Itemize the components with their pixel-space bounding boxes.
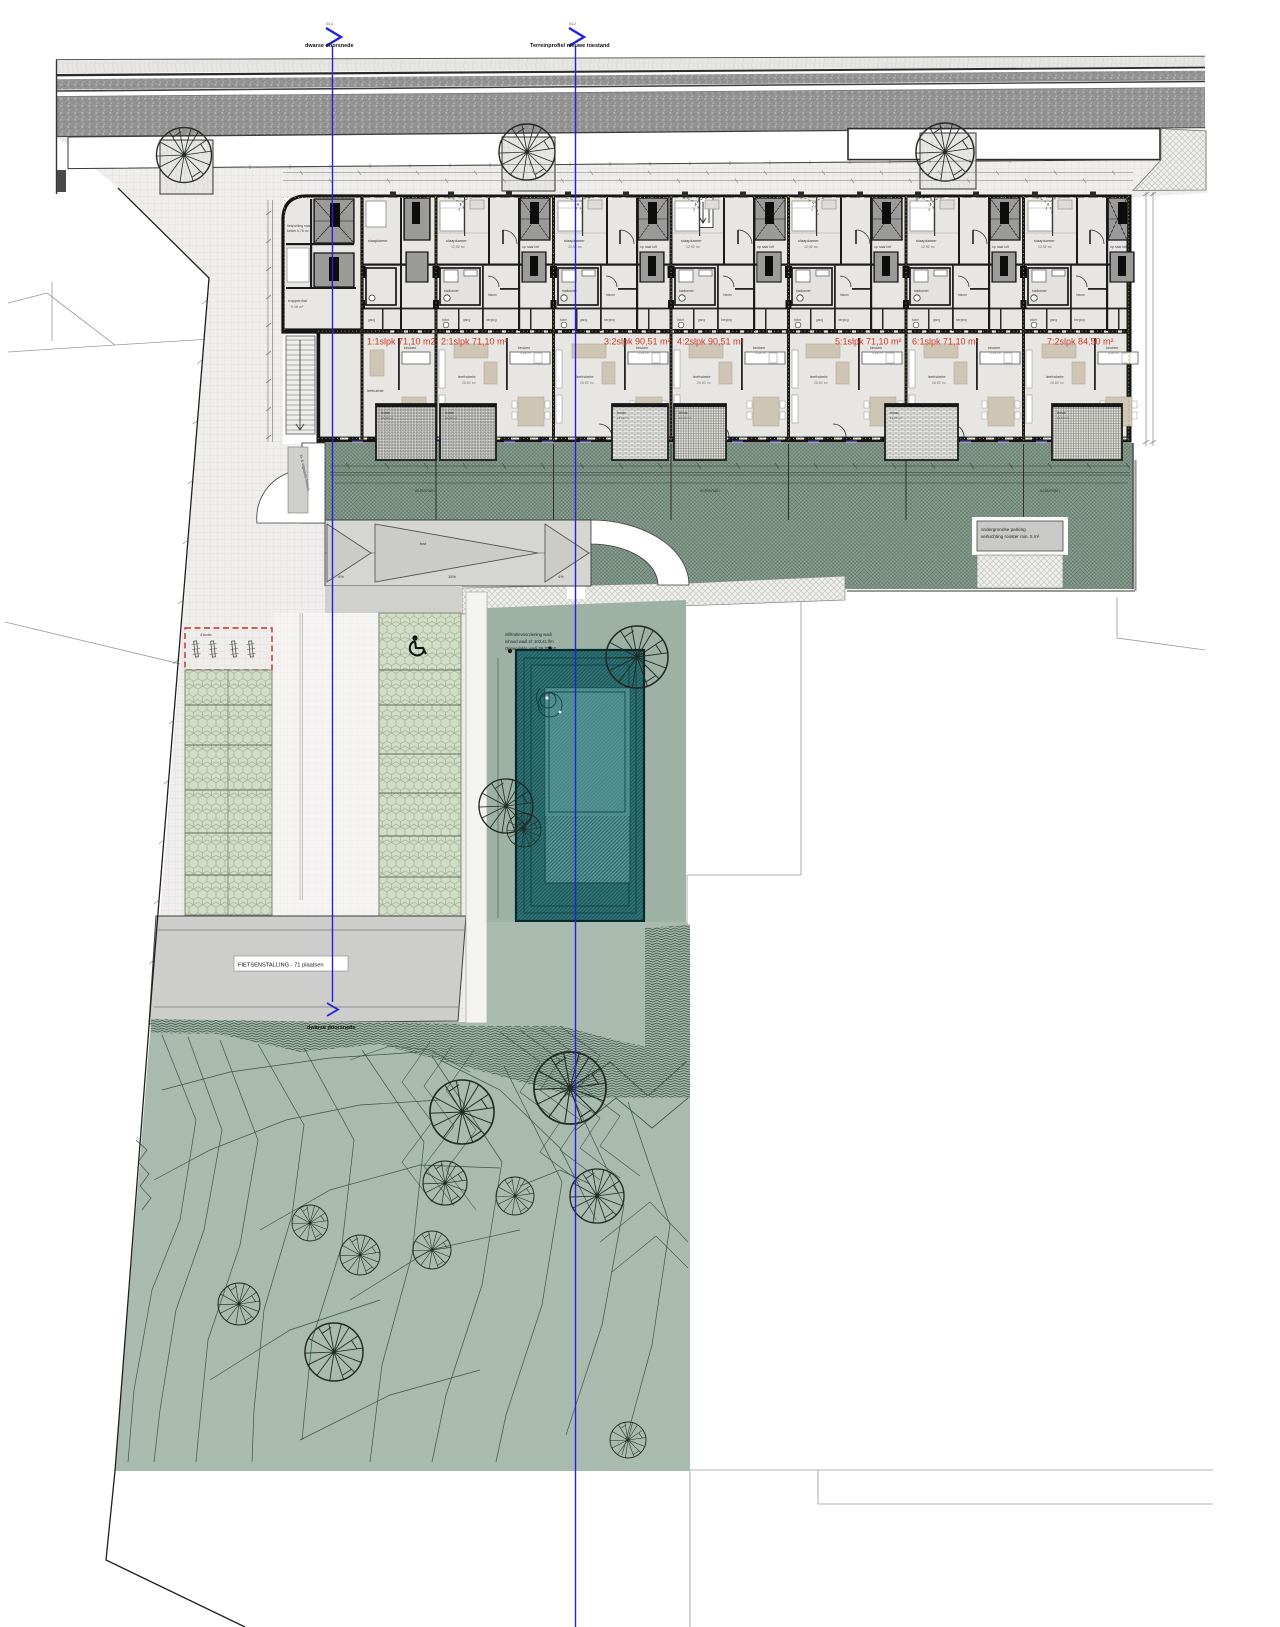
svg-text:keuken: keuken: [870, 346, 882, 350]
svg-text:toilet: toilet: [442, 318, 449, 322]
svg-text:dwarse doorsnede: dwarse doorsnede: [305, 43, 354, 49]
svg-text:12,00 m²: 12,00 m²: [617, 416, 629, 420]
svg-text:inkom: inkom: [606, 293, 615, 297]
svg-text:12,00 m²: 12,00 m²: [1057, 416, 1069, 420]
svg-text:leefruimte: leefruimte: [1046, 374, 1064, 379]
svg-text:1:1slpk 71,10 m2: 1:1slpk 71,10 m2: [367, 337, 436, 347]
svg-text:12,92 m²: 12,92 m²: [451, 245, 466, 249]
svg-text:4,28 m²: 4,28 m²: [872, 351, 883, 355]
svg-text:slaapkamer: slaapkamer: [1034, 238, 1055, 243]
svg-text:28,80 m²: 28,80 m²: [1050, 381, 1065, 385]
svg-text:inkom: inkom: [488, 293, 497, 297]
svg-text:keuken: keuken: [1106, 346, 1118, 350]
svg-text:04-3: 04-3: [326, 22, 333, 26]
svg-text:leefruimte: leefruimte: [576, 374, 594, 379]
svg-text:leefruimte: leefruimte: [458, 374, 476, 379]
svg-text:keuken: keuken: [753, 346, 765, 350]
svg-text:berging: berging: [956, 318, 967, 322]
svg-text:gang: gang: [933, 318, 940, 322]
svg-text:badkamer: badkamer: [1032, 289, 1048, 293]
svg-text:verluchting rooster min. 5 m²: verluchting rooster min. 5 m²: [981, 534, 1040, 539]
svg-text:gang: gang: [1050, 318, 1057, 322]
svg-text:12,92 m²: 12,92 m²: [1038, 245, 1053, 249]
svg-text:28,80 m²: 28,80 m²: [932, 381, 947, 385]
svg-text:12,00 m²: 12,00 m²: [381, 416, 393, 420]
svg-text:inkom: inkom: [958, 293, 967, 297]
svg-text:op naar loft: op naar loft: [522, 245, 539, 249]
svg-text:berging: berging: [604, 318, 615, 322]
svg-text:gang: gang: [816, 318, 823, 322]
svg-text:terras: terras: [890, 411, 899, 415]
svg-text:15%: 15%: [448, 574, 456, 579]
svg-text:berging: berging: [721, 318, 732, 322]
svg-text:terras: terras: [445, 411, 454, 415]
svg-text:achtertuin: achtertuin: [700, 488, 720, 493]
svg-text:keuken: keuken: [404, 346, 416, 350]
svg-text:bwt: bwt: [420, 541, 427, 546]
svg-text:28,80 m²: 28,80 m²: [462, 381, 477, 385]
svg-text:fietshelling naar: fietshelling naar: [287, 224, 312, 228]
svg-text:ondergrondse parking: ondergrondse parking: [981, 527, 1026, 532]
svg-text:slaapkamer: slaapkamer: [446, 238, 467, 243]
svg-text:toilet: toilet: [1030, 318, 1037, 322]
svg-text:28,80 m²: 28,80 m²: [697, 381, 712, 385]
svg-text:badkamer: badkamer: [796, 289, 812, 293]
svg-text:9,16 m²: 9,16 m²: [291, 305, 304, 309]
svg-text:op naar loft: op naar loft: [640, 245, 657, 249]
svg-text:4%: 4%: [558, 574, 564, 579]
svg-text:2:1slpk 71,10 m²: 2:1slpk 71,10 m²: [441, 337, 508, 347]
svg-text:keuken: keuken: [636, 346, 648, 350]
svg-text:keuken: keuken: [988, 346, 1000, 350]
svg-text:op naar loft: op naar loft: [757, 245, 774, 249]
svg-text:inhoud wadi 2l: 103,41 lfm: inhoud wadi 2l: 103,41 lfm: [505, 639, 554, 644]
svg-text:4,28 m²: 4,28 m²: [755, 351, 766, 355]
svg-text:toilet: toilet: [794, 318, 801, 322]
svg-text:gang: gang: [463, 318, 470, 322]
svg-text:toilet: toilet: [912, 318, 919, 322]
svg-text:12,00 m²: 12,00 m²: [445, 416, 457, 420]
svg-text:slaapkamer: slaapkamer: [368, 239, 388, 243]
svg-text:inkom: inkom: [840, 293, 849, 297]
svg-text:achtertuin: achtertuin: [415, 488, 435, 493]
svg-text:gang: gang: [698, 318, 705, 322]
svg-text:badkamer: badkamer: [679, 289, 695, 293]
svg-text:12,92 m²: 12,92 m²: [804, 245, 819, 249]
svg-text:FIETSENSTALLING - 71 plaatsen: FIETSENSTALLING - 71 plaatsen: [238, 963, 324, 969]
svg-text:leefruimte: leefruimte: [367, 389, 384, 393]
svg-text:4:2slpk 90,51 m²: 4:2slpk 90,51 m²: [677, 337, 744, 347]
svg-text:terras: terras: [617, 411, 626, 415]
svg-text:terras: terras: [381, 411, 390, 415]
svg-text:op naar loft: op naar loft: [1110, 245, 1127, 249]
svg-text:badkamer: badkamer: [444, 289, 460, 293]
svg-text:terras: terras: [679, 411, 688, 415]
svg-text:inkom: inkom: [1076, 293, 1085, 297]
svg-text:7:2slpk 84,50 m²: 7:2slpk 84,50 m²: [1047, 337, 1114, 347]
svg-text:Terreinprofiel nieuwe toestand: Terreinprofiel nieuwe toestand: [530, 43, 610, 49]
svg-text:04-2: 04-2: [569, 22, 576, 26]
svg-text:slaapkamer: slaapkamer: [564, 238, 585, 243]
svg-text:berging: berging: [486, 318, 497, 322]
svg-text:leefruimte: leefruimte: [810, 374, 828, 379]
svg-text:inkom: inkom: [723, 293, 732, 297]
svg-text:12,92 m²: 12,92 m²: [686, 245, 701, 249]
svg-text:28,80 m²: 28,80 m²: [580, 381, 595, 385]
svg-text:gang: gang: [580, 318, 587, 322]
svg-text:op naar loft: op naar loft: [874, 245, 891, 249]
svg-text:4%: 4%: [338, 574, 344, 579]
svg-text:3:2slpk 90,51 m²: 3:2slpk 90,51 m²: [604, 337, 671, 347]
svg-text:12,00 m²: 12,00 m²: [890, 416, 902, 420]
svg-text:infiltratievoorziening wadi: infiltratievoorziening wadi: [505, 632, 552, 637]
svg-text:slaapkamer: slaapkamer: [798, 238, 819, 243]
svg-text:kelder 5,76 m²: kelder 5,76 m²: [287, 229, 310, 233]
svg-text:leefruimte: leefruimte: [693, 374, 711, 379]
svg-text:leefruimte: leefruimte: [928, 374, 946, 379]
svg-text:dwarse doorsnede: dwarse doorsnede: [307, 1025, 356, 1031]
svg-text:6:1slpk 71,10 m²: 6:1slpk 71,10 m²: [912, 337, 979, 347]
svg-text:trappenhal: trappenhal: [288, 298, 307, 303]
svg-text:slaapkamer: slaapkamer: [916, 238, 937, 243]
svg-text:12,92 m²: 12,92 m²: [921, 245, 936, 249]
svg-text:4 moto: 4 moto: [200, 633, 212, 637]
svg-text:slaapkamer: slaapkamer: [681, 238, 702, 243]
svg-text:keuken: keuken: [518, 346, 530, 350]
svg-text:toilet: toilet: [677, 318, 684, 322]
svg-text:op naar loft: op naar loft: [992, 245, 1009, 249]
svg-text:12,00 m²: 12,00 m²: [679, 416, 691, 420]
svg-text:berging: berging: [838, 318, 849, 322]
svg-text:toilet: toilet: [560, 318, 567, 322]
svg-text:28,80 m²: 28,80 m²: [814, 381, 829, 385]
svg-text:berging: berging: [1074, 318, 1085, 322]
svg-text:achtertuin: achtertuin: [1040, 488, 1060, 493]
svg-text:gang: gang: [368, 318, 375, 322]
svg-text:terras: terras: [1057, 411, 1066, 415]
svg-text:4,28 m²: 4,28 m²: [1108, 351, 1119, 355]
svg-text:4,28 m²: 4,28 m²: [990, 351, 1001, 355]
svg-text:4,28 m²: 4,28 m²: [520, 351, 531, 355]
svg-text:5:1slpk 71,10 m²: 5:1slpk 71,10 m²: [835, 337, 902, 347]
svg-text:4,28 m²: 4,28 m²: [638, 351, 649, 355]
svg-text:badkamer: badkamer: [914, 289, 930, 293]
